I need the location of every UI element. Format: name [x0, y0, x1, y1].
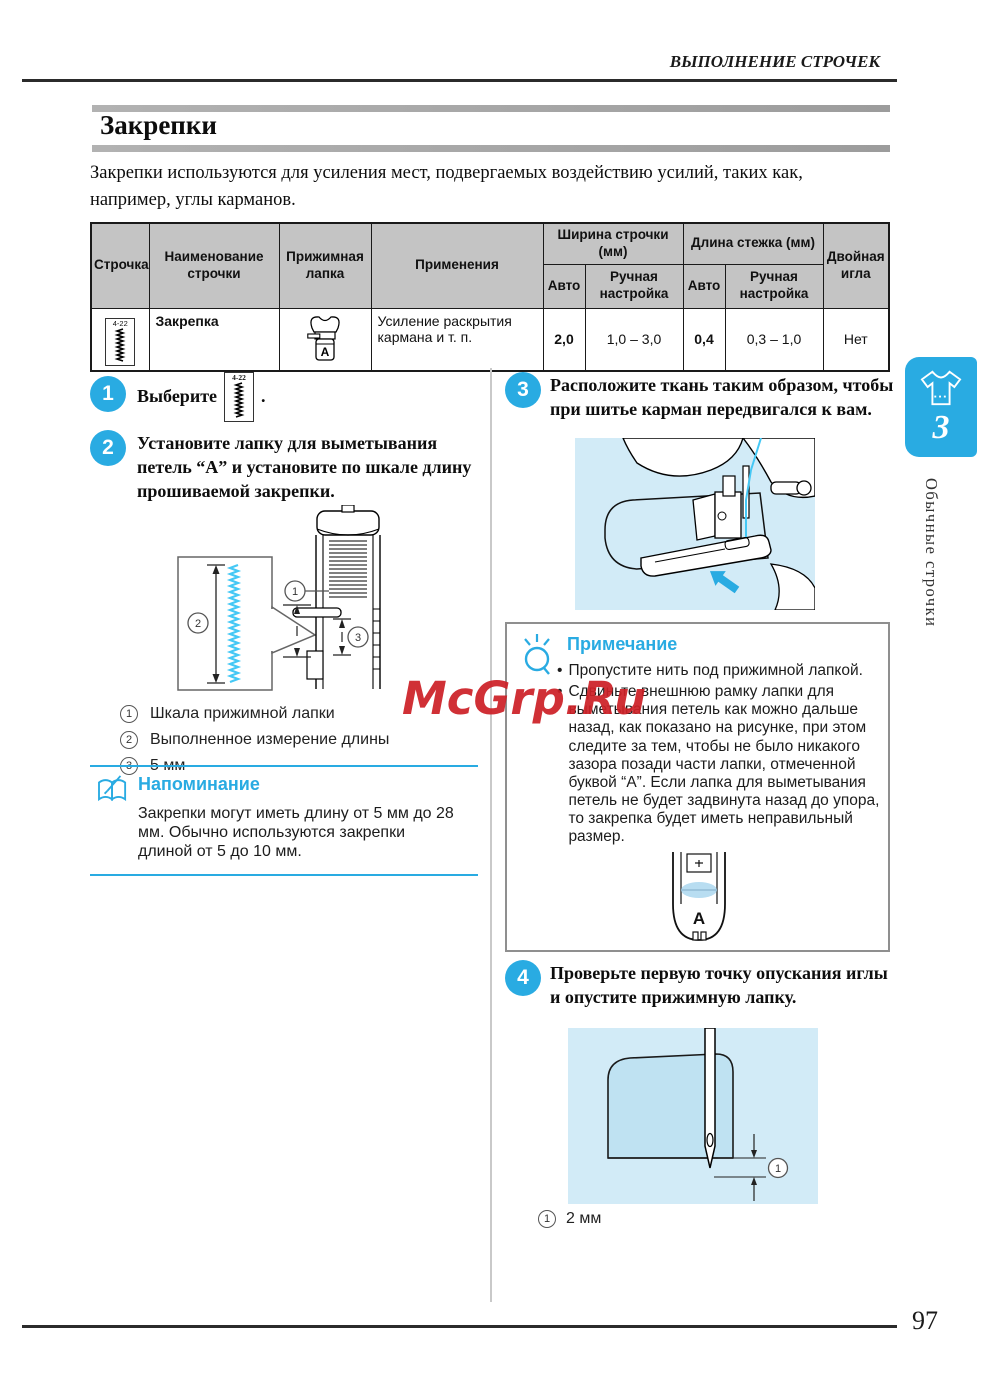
feed-direction-arrow	[705, 564, 742, 598]
col-header-width: Ширина строчки (мм)	[543, 223, 683, 264]
length-manual-cell: 0,3 – 1,0	[725, 308, 823, 371]
legend-marker-1: 1	[120, 705, 138, 723]
step-3-illustration	[575, 438, 815, 610]
step-2-number: 2	[90, 430, 126, 466]
running-header: ВЫПОЛНЕНИЕ СТРОЧЕК	[670, 52, 880, 72]
table-row: 4-22 Закрепка A	[91, 308, 889, 371]
step-4-illustration: 1	[568, 1028, 818, 1204]
step-1-text: Выберите 4-22 .	[137, 372, 266, 422]
col-header-application: Применения	[371, 223, 543, 308]
step-3-text: Расположите ткань таким образом, чтобы п…	[550, 374, 898, 422]
col-header-length-auto: Авто	[683, 264, 725, 308]
step-2-text: Установите лапку для выметывания петель …	[137, 432, 485, 503]
col-header-width-manual: Ручная настройка	[585, 264, 683, 308]
step-1-number: 1	[90, 376, 126, 412]
svg-text:1: 1	[775, 1163, 781, 1175]
stitch-spec-table: Строчка Наименование строчки Прижимная л…	[90, 222, 890, 372]
note-title: Примечание	[567, 634, 677, 655]
svg-text:3: 3	[355, 632, 361, 644]
manual-page: ВЫПОЛНЕНИЕ СТРОЧЕК Закрепки Закрепки исп…	[0, 0, 1000, 1394]
col-header-stitch: Строчка	[91, 223, 149, 308]
foot-scale-diagram: 2 1	[145, 505, 480, 697]
width-auto-cell: 2,0	[543, 308, 585, 371]
chapter-number: 3	[933, 411, 950, 445]
header-rule	[22, 79, 897, 82]
svg-text:2: 2	[195, 618, 201, 630]
col-header-length: Длина стежка (мм)	[683, 223, 823, 264]
intro-paragraph: Закрепки используются для усиления мест,…	[90, 160, 820, 214]
chapter-label-vertical: Обычные строчки	[921, 478, 941, 628]
foot-scale-hatch	[329, 541, 367, 597]
step-1-label: Выберите	[137, 385, 217, 409]
zigzag-stitch-glyph	[110, 328, 130, 362]
application-cell: Усиление раскрытия кармана и т. п.	[371, 308, 543, 371]
zigzag-stitch-glyph	[230, 382, 248, 418]
reminder-title: Напоминание	[138, 774, 260, 795]
step-4-number: 4	[505, 960, 541, 996]
legend-item-2: 2 Выполненное измерение длины	[120, 727, 389, 753]
step-4-text: Проверьте первую точку опускания иглы и …	[550, 962, 898, 1010]
stitch-name-cell: Закрепка	[149, 308, 279, 371]
step-1-period: .	[261, 385, 266, 409]
buttonhole-foot-icon: A	[307, 313, 343, 363]
tshirt-icon	[917, 367, 965, 409]
svg-text:A: A	[321, 345, 330, 359]
bartack-stitch-icon: 4-22	[224, 372, 254, 422]
foot-frame-illustration: A	[659, 852, 739, 952]
title-bar-bottom	[92, 145, 890, 152]
page-number: 97	[912, 1306, 938, 1336]
step-3-number: 3	[505, 372, 541, 408]
col-header-foot: Прижимная лапка	[279, 223, 371, 308]
step-4-caption: 1 2 мм	[538, 1210, 601, 1228]
foot-side-ticks	[373, 609, 380, 669]
col-header-name: Наименование строчки	[149, 223, 279, 308]
chapter-tab: 3	[905, 357, 977, 457]
reminder-text: Закрепки могут иметь длину от 5 мм до 28…	[138, 805, 458, 862]
column-divider	[490, 368, 492, 1302]
stitch-pattern-cell: 4-22	[91, 308, 149, 371]
caption-marker: 1	[538, 1210, 556, 1228]
length-auto-cell: 0,4	[683, 308, 725, 371]
svg-text:1: 1	[292, 586, 298, 598]
book-pencil-icon	[96, 775, 130, 803]
twin-needle-cell: Нет	[823, 308, 889, 371]
col-header-length-manual: Ручная настройка	[725, 264, 823, 308]
width-manual-cell: 1,0 – 3,0	[585, 308, 683, 371]
col-header-twin-needle: Двойная игла	[823, 223, 889, 308]
page-title: Закрепки	[100, 110, 217, 141]
watermark: McGrp.Ru	[402, 672, 646, 725]
bartack-stitch-icon: 4-22	[105, 318, 135, 366]
reminder-box: Напоминание Закрепки могут иметь длину о…	[90, 765, 478, 876]
col-header-width-auto: Авто	[543, 264, 585, 308]
legend-item-1: 1 Шкала прижимной лапки	[120, 701, 389, 727]
legend-marker-2: 2	[120, 731, 138, 749]
footer-rule	[22, 1325, 897, 1328]
presser-foot-cell: A	[279, 308, 371, 371]
svg-text:A: A	[693, 909, 705, 928]
